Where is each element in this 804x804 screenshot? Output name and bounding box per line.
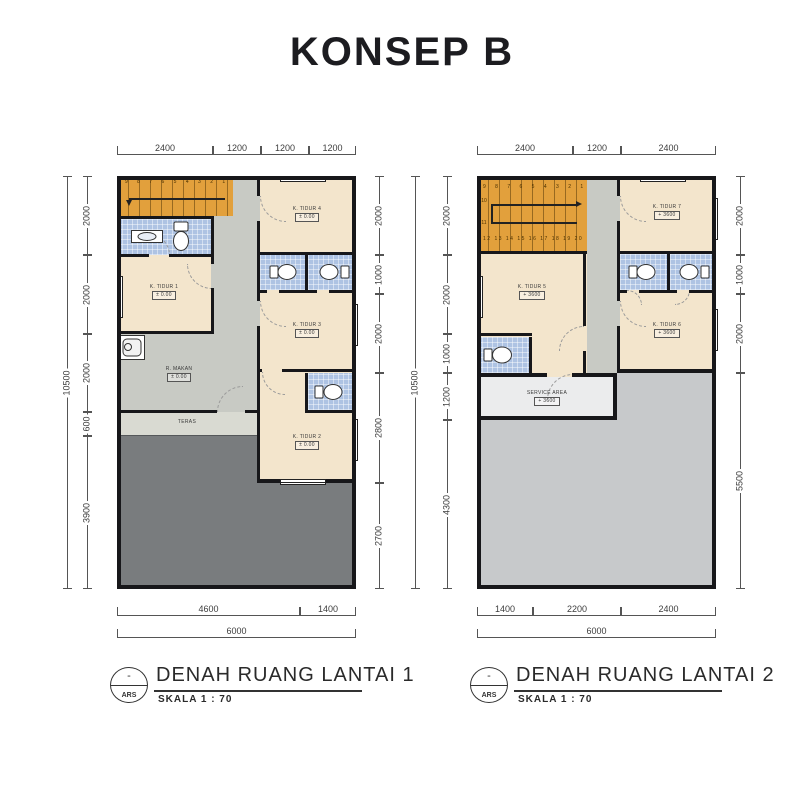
dimension: 2000 — [372, 294, 386, 373]
stair-direction-line — [491, 222, 577, 224]
wall-segment — [257, 176, 260, 196]
floor-plan-lantai-2: 9 8 7 6 5 4 3 2 1 12 13 14 15 16 17 18 1… — [477, 176, 716, 589]
room-elevation: ± 0.00 — [152, 291, 176, 299]
room-elevation: + 3600 — [519, 291, 544, 299]
roof-deck-area — [617, 373, 716, 589]
plan-caption-scale: SKALA 1 : 70 — [518, 694, 592, 705]
page-title: KONSEP B — [0, 30, 804, 75]
wall-segment — [617, 369, 716, 373]
room-label: K. TIDUR 1 — [129, 284, 199, 290]
stair-landing-number: 11 — [479, 220, 489, 226]
dimension: 2000 — [80, 176, 94, 255]
wall-segment — [245, 410, 260, 413]
stair-step-numbers-lower: 12 13 14 15 16 17 18 19 20 — [483, 236, 583, 242]
wall-segment — [257, 326, 260, 483]
dimension: 6000 — [477, 624, 716, 638]
dimension: 2000 — [440, 255, 454, 334]
room-elevation: + 3600 — [534, 397, 559, 405]
wall-segment — [639, 290, 677, 293]
dimension: 10500 — [408, 176, 422, 589]
dimension: 2000 — [733, 176, 747, 255]
dimension: 2800 — [372, 373, 386, 483]
plan-caption-title: DENAH RUANG LANTAI 2 — [516, 664, 775, 687]
dimension: 1400 — [477, 602, 533, 616]
floor-plan-lantai-1: 9 8 7 6 5 4 3 2 1 — [117, 176, 356, 589]
dimension: 2400 — [621, 602, 716, 616]
window — [280, 479, 326, 485]
wall-segment — [257, 290, 267, 293]
wall-segment — [477, 251, 587, 254]
wall-segment — [329, 290, 356, 293]
dimension: 1200 — [261, 141, 309, 155]
room-label: K. TIDUR 3 — [272, 322, 342, 328]
dimension: 2200 — [533, 602, 621, 616]
toilet-icon — [676, 259, 710, 285]
drawing-tag: - ARS — [110, 667, 148, 703]
wall-segment — [305, 252, 308, 293]
room-elevation: ± 0.00 — [295, 329, 319, 337]
drawing-tag-discipline: ARS — [471, 692, 507, 699]
wall-segment — [477, 416, 617, 420]
dimension: 4600 — [117, 602, 300, 616]
dimension: 2000 — [80, 334, 94, 412]
yard-area — [117, 436, 260, 589]
wall-segment — [211, 216, 214, 264]
room-elevation: ± 0.00 — [295, 213, 319, 221]
dimension: 3900 — [80, 436, 94, 589]
wall-segment — [689, 290, 716, 293]
wall-segment — [617, 176, 620, 196]
stair-arrow-icon — [576, 201, 582, 207]
wall-segment — [529, 337, 532, 377]
window — [352, 419, 358, 461]
wall-segment — [117, 216, 214, 219]
drawing-tag-number: - — [111, 670, 147, 682]
dimension: 1000 — [733, 255, 747, 294]
caption-underline — [514, 690, 722, 692]
stair-direction-line — [491, 204, 577, 206]
corridor — [587, 176, 620, 377]
yard-area — [257, 483, 356, 589]
wall-segment — [477, 333, 532, 336]
toilet-icon — [483, 341, 517, 369]
plan-caption-title: DENAH RUANG LANTAI 1 — [156, 664, 415, 687]
room-label: SERVICE AREA — [512, 390, 582, 396]
dimension: 5500 — [733, 373, 747, 589]
stair-step-numbers: 9 8 7 6 5 4 3 2 1 — [125, 179, 225, 185]
stair-step-numbers-upper: 9 8 7 6 5 4 3 2 1 — [483, 184, 583, 190]
wall-segment — [667, 251, 670, 293]
wall-segment — [613, 373, 617, 420]
dimension: 1200 — [213, 141, 261, 155]
window — [352, 304, 358, 346]
room-elevation: + 3600 — [654, 211, 679, 219]
staircase: 9 8 7 6 5 4 3 2 1 — [117, 176, 233, 216]
dimension: 2400 — [117, 141, 213, 155]
window — [477, 276, 483, 318]
window — [280, 176, 326, 182]
wall-segment — [257, 369, 262, 372]
drawing-tag: - ARS — [470, 667, 508, 703]
sink-icon — [131, 230, 163, 243]
dimension: 2000 — [80, 255, 94, 334]
wall-segment — [572, 373, 617, 377]
wall-segment — [617, 221, 620, 301]
room-label: K. TIDUR 4 — [272, 206, 342, 212]
window — [712, 198, 718, 240]
dimension: 2700 — [372, 483, 386, 589]
teras-edge-line — [117, 435, 260, 436]
toilet-icon — [314, 379, 348, 405]
room-label: K. TIDUR 7 — [632, 204, 702, 210]
dimension: 1200 — [309, 141, 356, 155]
dimension: 4300 — [440, 420, 454, 589]
caption-underline — [154, 690, 362, 692]
window — [117, 276, 123, 318]
wall-segment — [305, 373, 308, 413]
window — [640, 176, 686, 182]
dimension: 2000 — [372, 176, 386, 255]
wall-segment — [169, 254, 211, 257]
dimension: 10500 — [60, 176, 74, 589]
room-label: R. MAKAN — [144, 366, 214, 372]
wall-segment — [279, 290, 317, 293]
kitchen-sink-icon — [119, 335, 145, 360]
wall-segment — [617, 326, 620, 373]
wall-segment — [211, 288, 214, 333]
toilet-icon — [171, 221, 191, 253]
wall-segment — [117, 331, 214, 334]
wall-segment — [257, 221, 260, 301]
room-label: K. TIDUR 2 — [272, 434, 342, 440]
roof-deck-area — [477, 420, 617, 589]
dimension: 600 — [80, 412, 94, 436]
staircase: 9 8 7 6 5 4 3 2 1 12 13 14 15 16 17 18 1… — [477, 176, 587, 251]
dimension: 6000 — [117, 624, 356, 638]
room-label: K. TIDUR 6 — [632, 322, 702, 328]
wall-segment — [583, 254, 586, 326]
dimension: 2000 — [733, 294, 747, 373]
wall-segment — [305, 410, 356, 413]
room-elevation: ± 0.00 — [167, 373, 191, 381]
stair-arrow-icon — [126, 200, 132, 206]
stair-landing-number: 10 — [479, 198, 489, 204]
drawing-tag-discipline: ARS — [111, 692, 147, 699]
dimension: 1400 — [300, 602, 356, 616]
toilet-icon — [628, 259, 658, 285]
room-elevation: + 3600 — [654, 329, 679, 337]
plan-caption-scale: SKALA 1 : 70 — [158, 694, 232, 705]
dimension: 1200 — [440, 373, 454, 420]
wall-segment — [617, 290, 627, 293]
toilet-icon — [269, 259, 299, 285]
room-elevation: ± 0.00 — [295, 441, 319, 449]
dimension: 1000 — [372, 255, 386, 294]
dimension: 1000 — [440, 334, 454, 373]
dimension: 2400 — [621, 141, 716, 155]
drawing-tag-number: - — [471, 670, 507, 682]
window — [712, 309, 718, 351]
dimension: 1200 — [573, 141, 621, 155]
room-label: TERAS — [152, 419, 222, 425]
stair-direction-line — [129, 198, 225, 200]
dimension: 2000 — [440, 176, 454, 255]
toilet-icon — [316, 259, 350, 285]
dimension: 2400 — [477, 141, 573, 155]
wall-segment — [477, 373, 547, 377]
wall-segment — [117, 410, 217, 413]
stair-direction-line — [491, 204, 493, 223]
wall-segment — [282, 369, 356, 372]
wall-segment — [117, 254, 149, 257]
room-label: K. TIDUR 5 — [497, 284, 567, 290]
